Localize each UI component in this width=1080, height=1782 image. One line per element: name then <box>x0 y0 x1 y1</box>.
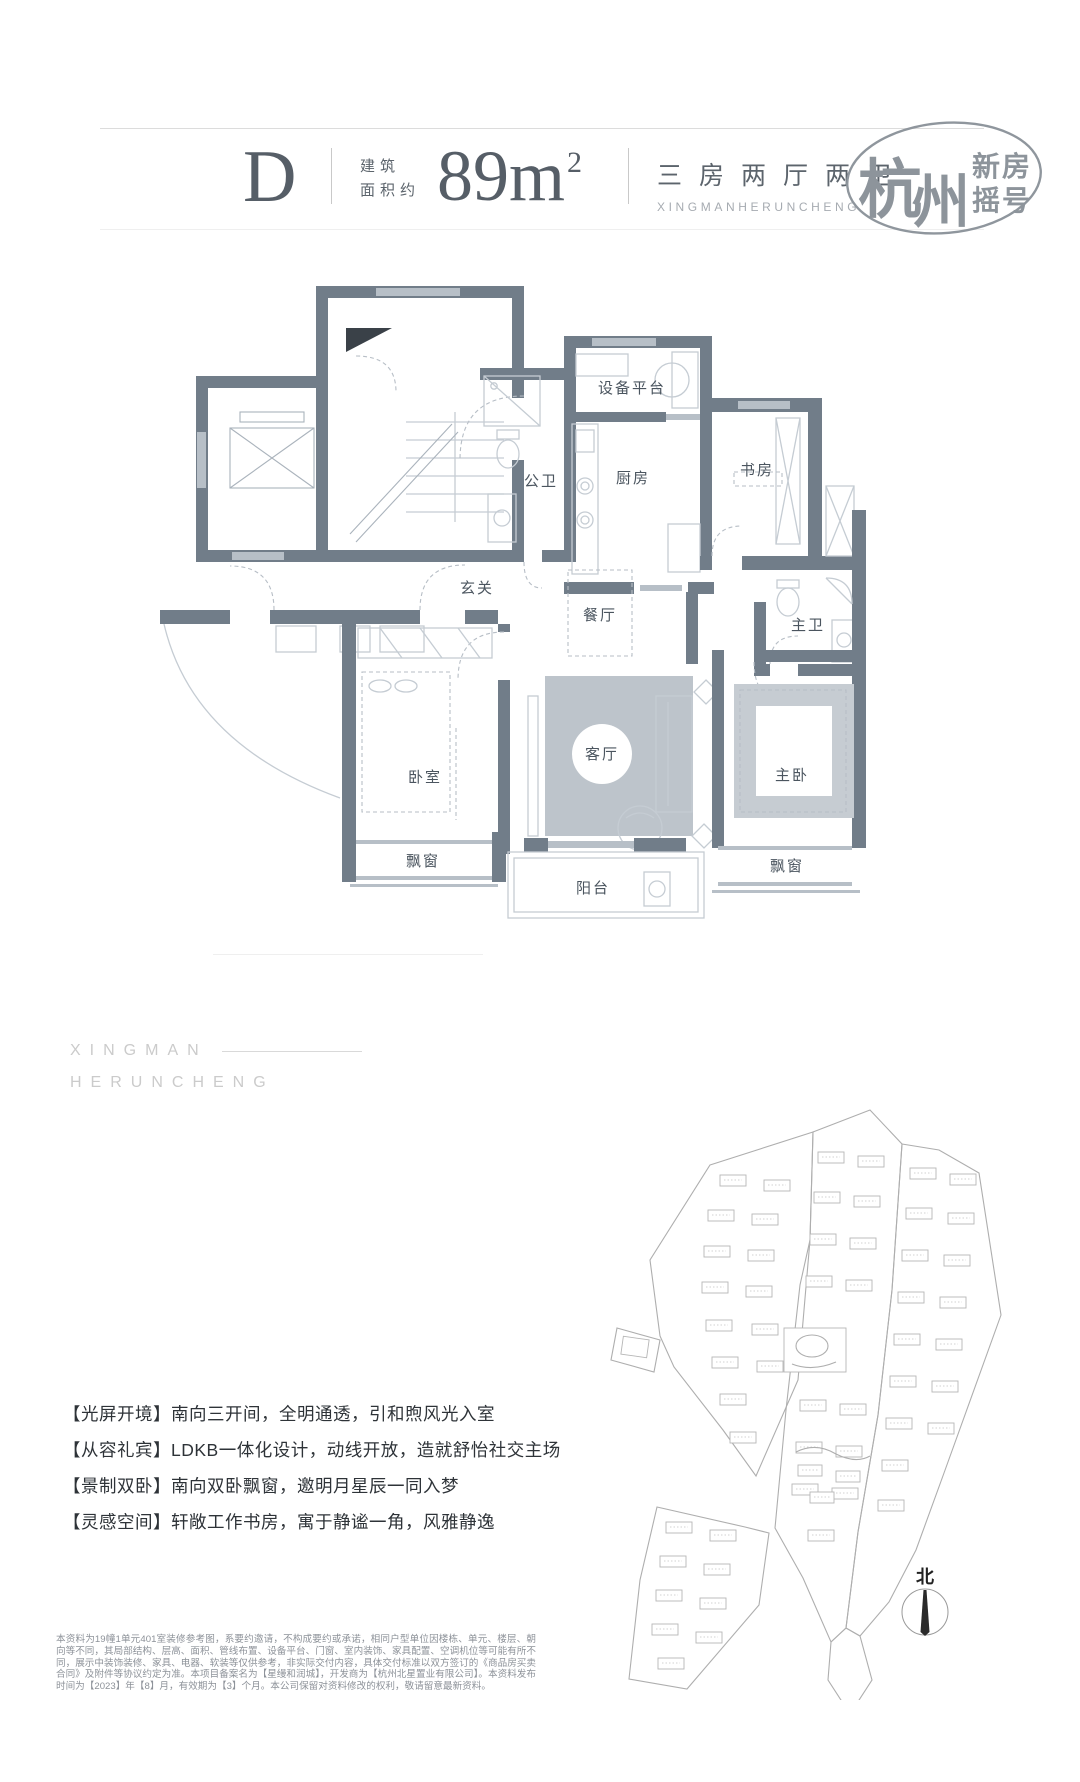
room-label-dining: 餐厅 <box>583 607 617 624</box>
room-label-masterbed: 主卧 <box>775 767 809 784</box>
north-label: 北 <box>916 1567 934 1587</box>
room-label-bath: 公卫 <box>524 473 558 490</box>
site-plan: 北 <box>560 1080 1080 1700</box>
brand-block: XINGMAN HERUNCHENG <box>70 1042 362 1092</box>
area-superscript: 2 <box>567 146 582 179</box>
room-label-platform: 设备平台 <box>598 380 666 397</box>
logo-line2: 摇号 <box>972 185 1032 216</box>
brand-line2: HERUNCHENG <box>70 1074 362 1092</box>
header-divider-2 <box>628 148 629 204</box>
room-label-balcony: 阳台 <box>576 880 610 897</box>
feature-list: 【光屏开境】南向三开间，全明通透，引和煦风光入室 【从容礼宾】LDKB一体化设计… <box>63 1396 561 1540</box>
room-label-living: 客厅 <box>585 746 619 763</box>
logo-line1: 新房 <box>972 150 1032 182</box>
room-label-baywindow-left: 飘窗 <box>406 852 440 870</box>
brand-logo: 杭 州 新房 摇号 <box>842 118 1048 242</box>
room-label-kitchen: 厨房 <box>616 470 650 487</box>
room-label-bedroom: 卧室 <box>408 769 442 786</box>
logo-city-char2: 州 <box>912 170 970 235</box>
brand-rule <box>222 1051 362 1052</box>
feature-item: 【灵感空间】轩敞工作书房，寓于静谧一角，风雅静逸 <box>63 1504 561 1540</box>
north-compass-icon: 北 <box>902 1567 948 1636</box>
area-label-line1: 建筑 <box>360 155 420 179</box>
unit-type-letter: D <box>243 140 296 214</box>
feature-item: 【景制双卧】南向双卧飘窗，邀明月星辰一同入梦 <box>63 1468 561 1504</box>
feature-item: 【从容礼宾】LDKB一体化设计，动线开放，造就舒怡社交主场 <box>63 1432 561 1468</box>
brand-line1: XINGMAN <box>70 1042 208 1060</box>
header-divider-1 <box>331 148 332 204</box>
room-label-baywindow-right: 飘窗 <box>770 857 804 875</box>
disclaimer-text: 本资料为19幢1单元401室装修参考图，系要约邀请，不构成要约或承诺，相同户型单… <box>56 1634 536 1693</box>
room-label-foyer: 玄关 <box>460 580 494 597</box>
area-value: 89m2 <box>437 140 582 212</box>
section-rule <box>213 954 483 955</box>
floor-plan: 设备平台 公卫 厨房 书房 玄关 餐厅 主卫 卧室 客厅 主卧 飘窗 飘窗 阳台 <box>140 272 880 932</box>
area-label-line2: 面积约 <box>360 179 420 203</box>
feature-item: 【光屏开境】南向三开间，全明通透，引和煦风光入室 <box>63 1396 561 1432</box>
flyer-page: D 建筑 面积约 89m2 三房两厅两卫 XINGMANHERUNCHENG 杭… <box>0 0 1080 1782</box>
room-label-study: 书房 <box>740 462 774 479</box>
room-label-masterbath: 主卫 <box>791 617 825 634</box>
